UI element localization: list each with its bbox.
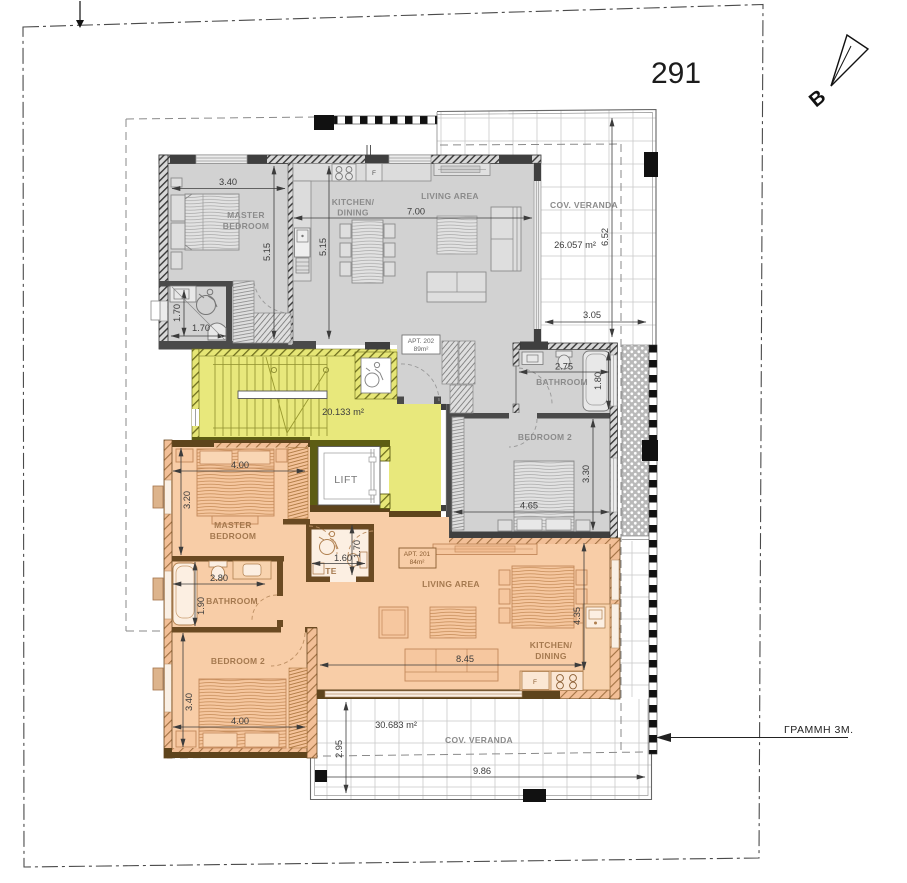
svg-text:5.15: 5.15: [262, 243, 272, 261]
svg-text:4.35: 4.35: [572, 607, 582, 625]
svg-text:2.80: 2.80: [210, 573, 228, 583]
svg-text:9.86: 9.86: [473, 766, 491, 776]
svg-text:1.70: 1.70: [352, 540, 362, 558]
svg-text:LIVING AREA: LIVING AREA: [422, 579, 480, 589]
svg-text:4.00: 4.00: [231, 460, 249, 470]
svg-text:BEDROOM: BEDROOM: [223, 221, 270, 231]
svg-text:BEDROOM 2: BEDROOM 2: [518, 432, 572, 442]
svg-text:291: 291: [651, 57, 701, 90]
svg-text:DINING: DINING: [535, 651, 567, 661]
svg-text:BEDROOM: BEDROOM: [210, 531, 257, 541]
svg-text:1.70: 1.70: [172, 304, 182, 322]
svg-text:LIFT: LIFT: [334, 474, 358, 486]
svg-text:20.133 m²: 20.133 m²: [322, 407, 364, 417]
svg-text:3.40: 3.40: [219, 177, 237, 187]
svg-text:26.057 m²: 26.057 m²: [554, 240, 596, 250]
svg-text:30.683 m²: 30.683 m²: [375, 720, 417, 730]
svg-text:7.00: 7.00: [407, 207, 425, 217]
svg-text:KITCHEN/: KITCHEN/: [530, 640, 573, 650]
svg-text:MASTER: MASTER: [227, 210, 265, 220]
svg-text:ΓΡΑΜΜΗ 3Μ.: ΓΡΑΜΜΗ 3Μ.: [784, 724, 854, 736]
svg-text:3.30: 3.30: [581, 465, 591, 483]
svg-text:BEDROOM 2: BEDROOM 2: [211, 656, 265, 666]
svg-text:KITCHEN/: KITCHEN/: [332, 197, 375, 207]
svg-text:89m²: 89m²: [414, 346, 430, 353]
svg-text:LIVING AREA: LIVING AREA: [421, 191, 479, 201]
svg-text:COV. VERANDA: COV. VERANDA: [445, 735, 513, 745]
svg-text:BATHROOM: BATHROOM: [206, 596, 258, 606]
svg-text:APT. 202: APT. 202: [408, 338, 435, 345]
svg-text:1.70: 1.70: [192, 323, 210, 333]
svg-text:F: F: [372, 170, 376, 177]
svg-text:MASTER: MASTER: [214, 520, 252, 530]
svg-text:TE: TE: [325, 566, 336, 576]
svg-text:8.45: 8.45: [456, 654, 474, 664]
svg-text:1.90: 1.90: [196, 597, 206, 615]
svg-text:F: F: [533, 679, 537, 686]
svg-text:DINING: DINING: [337, 208, 369, 218]
svg-text:3.05: 3.05: [583, 310, 601, 320]
svg-text:3.20: 3.20: [182, 491, 192, 509]
svg-text:6.52: 6.52: [600, 228, 610, 246]
svg-text:5.15: 5.15: [318, 238, 328, 256]
svg-text:BATHROOM: BATHROOM: [536, 377, 588, 387]
svg-text:COV. VERANDA: COV. VERANDA: [550, 200, 618, 210]
svg-text:4.65: 4.65: [520, 501, 538, 511]
svg-text:2.95: 2.95: [334, 740, 344, 758]
svg-text:1.60: 1.60: [334, 553, 352, 563]
svg-text:1.80: 1.80: [593, 372, 603, 390]
svg-text:84m²: 84m²: [410, 559, 426, 566]
svg-text:4.00: 4.00: [231, 716, 249, 726]
svg-text:2.75: 2.75: [555, 362, 573, 372]
svg-text:APT. 201: APT. 201: [404, 551, 431, 558]
svg-text:3.40: 3.40: [184, 693, 194, 711]
